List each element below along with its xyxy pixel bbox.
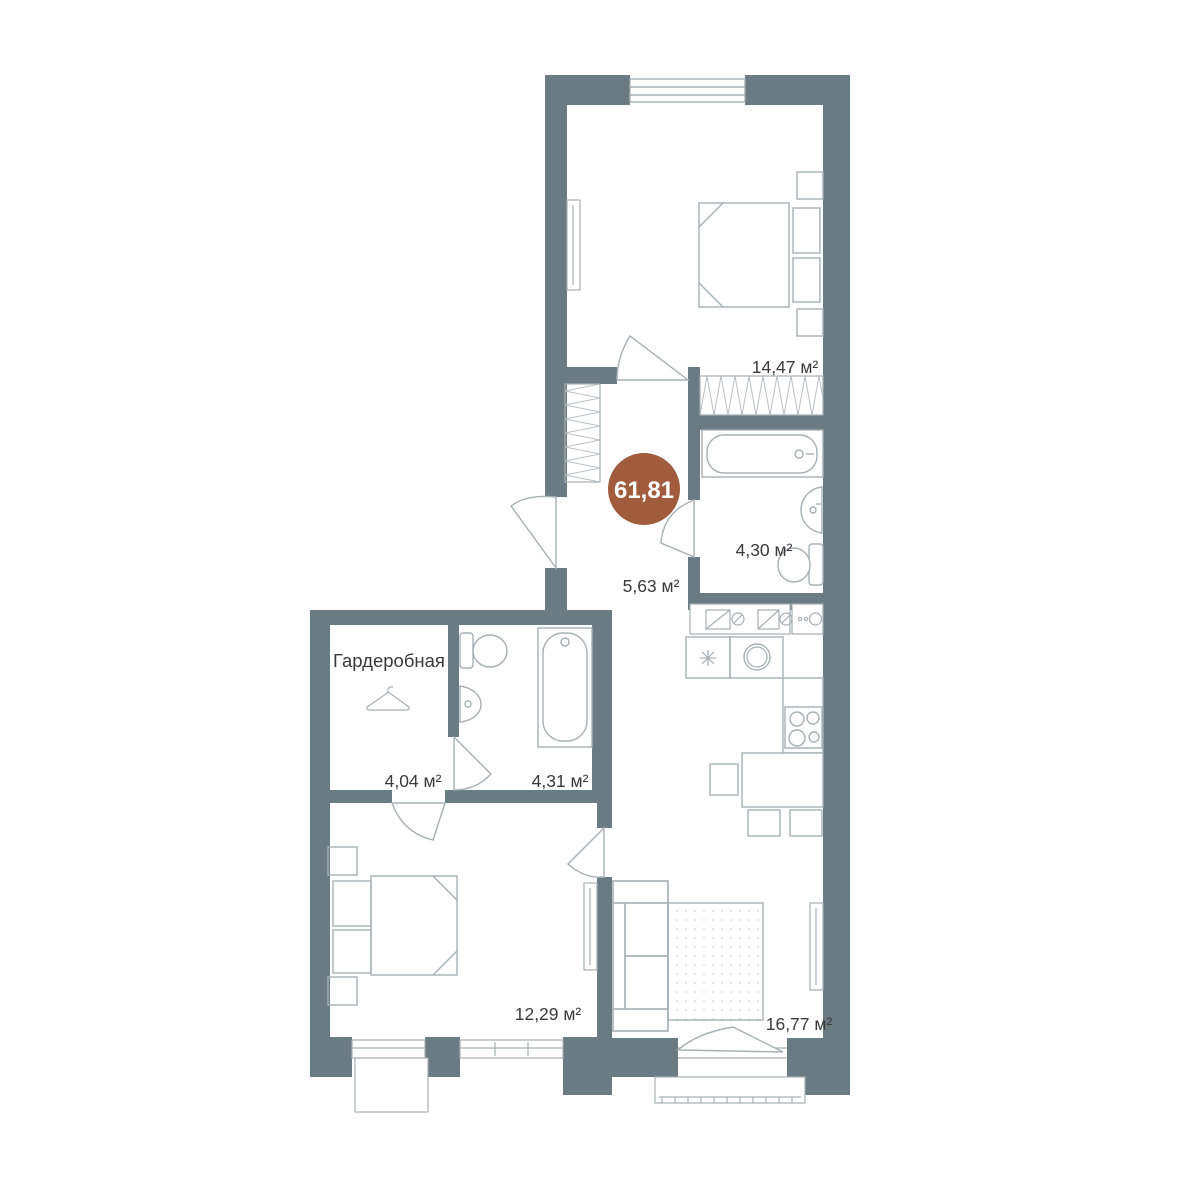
radiator-icon-bedroom [584, 883, 597, 970]
total-area-value: 61,81 [614, 477, 674, 504]
door-swing-entrance [511, 496, 556, 568]
door-swing-bedroom-bottom [568, 828, 604, 877]
closet-hatch-bedroom [700, 376, 823, 415]
sink-icon-top [801, 487, 822, 533]
label-bedroom-bottom: 12,29 м² [515, 1004, 582, 1024]
door-swing-bathroom-small [454, 737, 491, 790]
label-living-kitchen: 16,77 м² [766, 1014, 833, 1034]
window-bottom-left [352, 1040, 428, 1112]
stove-icon [783, 678, 823, 753]
window-bottom-right [460, 1040, 563, 1058]
balcony [655, 1077, 805, 1103]
bed-icon-top [699, 172, 823, 336]
rug [668, 903, 763, 1020]
label-wardrobe-area: 4,04 м² [385, 771, 442, 791]
floor-plan: 61,81 14,47 м² 4,30 м² 5,63 м² Гардеробн… [0, 0, 1200, 1200]
kitchen-sink-icon [730, 637, 783, 678]
bathtub-icon-small [538, 628, 592, 747]
floor-plan-svg: 61,81 14,47 м² 4,30 м² 5,63 м² Гардеробн… [0, 0, 1200, 1200]
hanger-icon [367, 687, 409, 710]
label-bathroom-small: 4,31 м² [532, 771, 589, 791]
window-top [630, 79, 745, 102]
fridge-icon [686, 637, 730, 678]
sofa-icon [613, 881, 668, 1031]
dining-table-icon [710, 753, 823, 836]
total-area-badge: 61,81 [608, 453, 680, 525]
bathtub-icon-top [702, 430, 823, 477]
toilet-icon-small [460, 633, 507, 668]
radiator-icon-top [567, 200, 580, 290]
washing-machine-icon [792, 604, 823, 634]
label-bedroom-top: 14,47 м² [752, 357, 819, 377]
closet-hatch-hall [565, 384, 600, 482]
label-hallway: 5,63 м² [623, 576, 680, 596]
door-swing-wardrobe [392, 803, 445, 840]
vent-shaft-icon [690, 604, 792, 634]
label-bathroom-top: 4,30 м² [736, 540, 793, 560]
radiator-icon-living [810, 903, 823, 990]
sink-icon-small [460, 686, 481, 722]
bed-icon-bottom [328, 847, 457, 1005]
label-wardrobe-title: Гардеробная [333, 650, 445, 671]
door-swing-bedroom-top [617, 336, 688, 380]
